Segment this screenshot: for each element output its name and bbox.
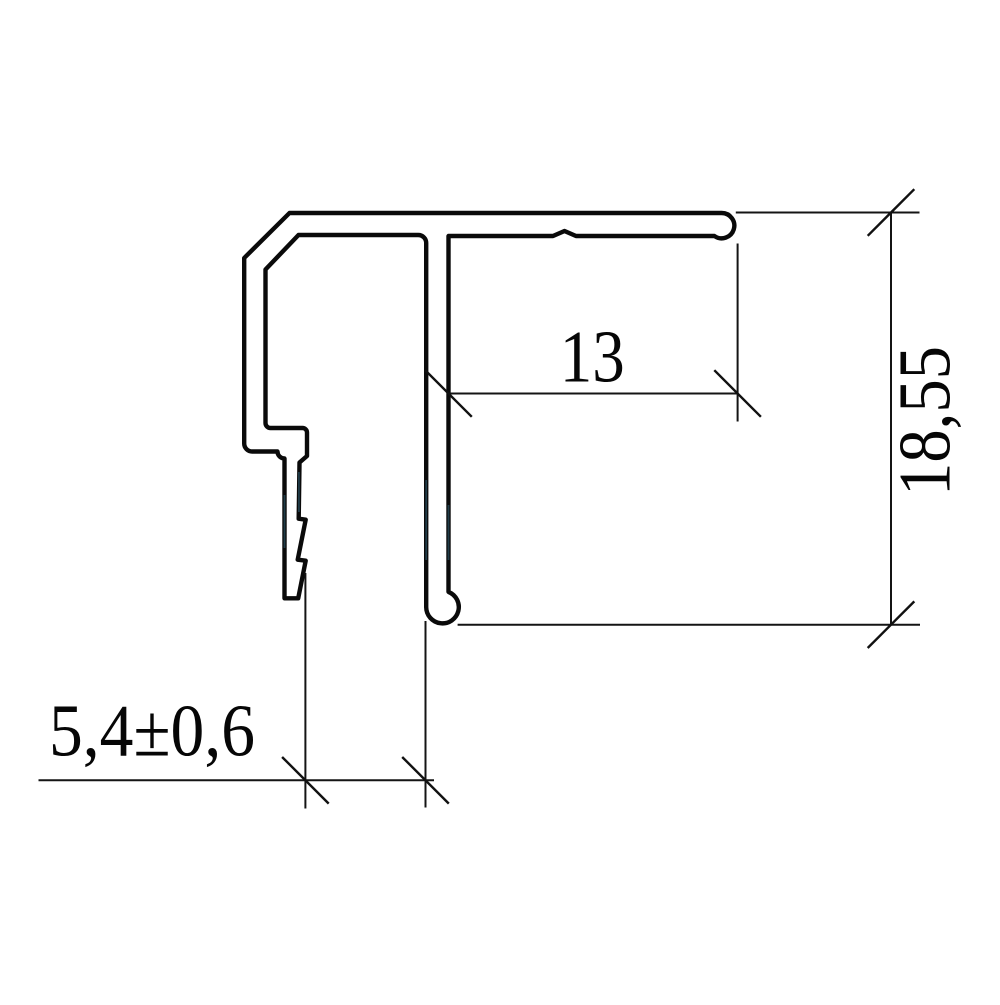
svg-text:5,4±0,6: 5,4±0,6 <box>49 691 255 773</box>
svg-text:13: 13 <box>560 317 625 399</box>
svg-text:18,55: 18,55 <box>885 346 967 496</box>
